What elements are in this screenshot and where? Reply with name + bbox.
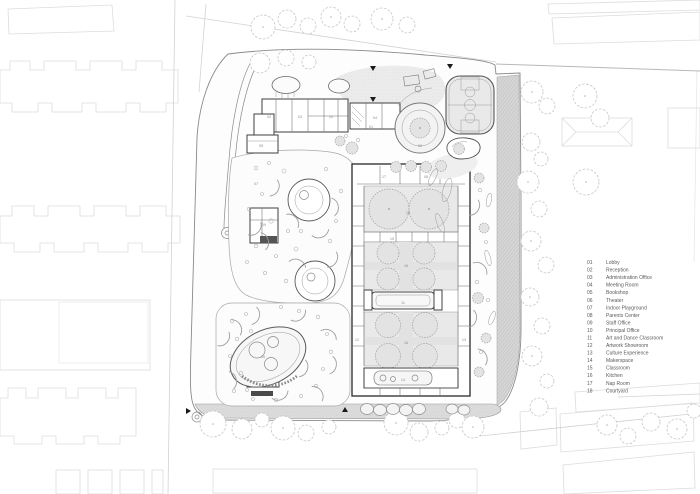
room-label: 11 <box>401 301 405 305</box>
room-label: 04 <box>373 116 377 120</box>
legend-item-label: Kitchen <box>606 373 623 379</box>
legend-item-label: Lobby <box>606 260 620 266</box>
legend-item-number: 12 <box>587 343 593 349</box>
room-label: 13 <box>462 338 466 342</box>
room-label: 10 <box>329 115 333 119</box>
legend-item-number: 05 <box>587 290 593 296</box>
room-label: 14 <box>401 378 405 382</box>
legend-item-number: 10 <box>587 328 593 334</box>
legend-item-number: 13 <box>587 351 593 357</box>
legend-item-number: 16 <box>587 373 593 379</box>
room-label: 02 <box>267 115 271 119</box>
spiral-pavilion-1 <box>288 179 330 221</box>
legend-item-label: Nap Room <box>606 381 630 387</box>
room-label: 01 <box>369 125 373 129</box>
legend-item-label: Parents Center <box>606 313 640 319</box>
room-label: 09 <box>262 223 266 227</box>
classroom-block <box>352 164 470 396</box>
entrance-marker <box>186 408 191 414</box>
legend-item-label: Makerspace <box>606 358 633 364</box>
legend-item-number: 03 <box>587 275 593 281</box>
legend-item-label: Principal Office <box>606 328 640 334</box>
legend-item-label: Staff Office <box>606 320 631 326</box>
shrubs <box>361 404 471 416</box>
room-label: 18 <box>404 341 408 345</box>
room-label: 05 <box>259 144 263 148</box>
legend-item-number: 01 <box>587 260 593 266</box>
room-label: 15 <box>390 237 394 241</box>
legend-item-label: Meeting Room <box>606 283 639 289</box>
legend-item-number: 06 <box>587 298 593 304</box>
legend-item-number: 11 <box>587 336 592 342</box>
room-label: 16 <box>261 355 265 359</box>
legend-item-label: Culture Experience <box>606 351 649 357</box>
room-label: 03 <box>298 115 302 119</box>
planter-kidney <box>447 138 480 159</box>
legend-item-label: Classroom <box>606 366 630 372</box>
legend-item-number: 18 <box>587 388 593 394</box>
legend-item-label: Reception <box>606 268 629 274</box>
perimeter-path-right <box>497 75 520 406</box>
legend-item-label: Indoor Playground <box>606 305 647 311</box>
room-label: 07 <box>254 182 258 186</box>
indoor-playground <box>228 150 360 303</box>
legend-item-label: Bookshop <box>606 290 628 296</box>
legend-item-number: 09 <box>587 320 593 326</box>
legend-item-number: 07 <box>587 305 593 311</box>
room-label: 08 <box>424 175 428 179</box>
kindergarten-building <box>216 69 497 406</box>
legend-item-label: Theater <box>606 298 624 304</box>
legend-item-number: 15 <box>587 366 593 372</box>
legend-item-number: 02 <box>587 268 593 274</box>
legend-item-number: 14 <box>587 358 593 364</box>
basketball-court <box>446 76 494 134</box>
legend: 01 Lobby 02 Reception 03 Administration … <box>587 260 663 394</box>
legend-item-label: Administration Office <box>606 275 652 281</box>
legend-item-label: Artwork Showroom <box>606 343 648 349</box>
courtyard-c <box>364 312 458 369</box>
legend-item-number: 17 <box>587 381 593 387</box>
art-dance-bar <box>364 290 442 310</box>
room-label: 12 <box>355 338 359 342</box>
site-plan-drawing: 01 02 03 10 04 05 06 07 08 17 09 15 18 1… <box>0 0 700 494</box>
legend-item-label: Courtyard <box>606 388 628 394</box>
room-label: 17 <box>382 175 386 179</box>
legend-item-label: Art and Dance Classroom <box>606 336 663 342</box>
courtyard-b <box>364 242 458 290</box>
room-label: 18 <box>404 264 408 268</box>
legend-item-number: 04 <box>587 283 593 289</box>
room-label: 06 <box>418 144 422 148</box>
room-label: 18 <box>406 211 410 215</box>
legend-item-number: 08 <box>587 313 593 319</box>
